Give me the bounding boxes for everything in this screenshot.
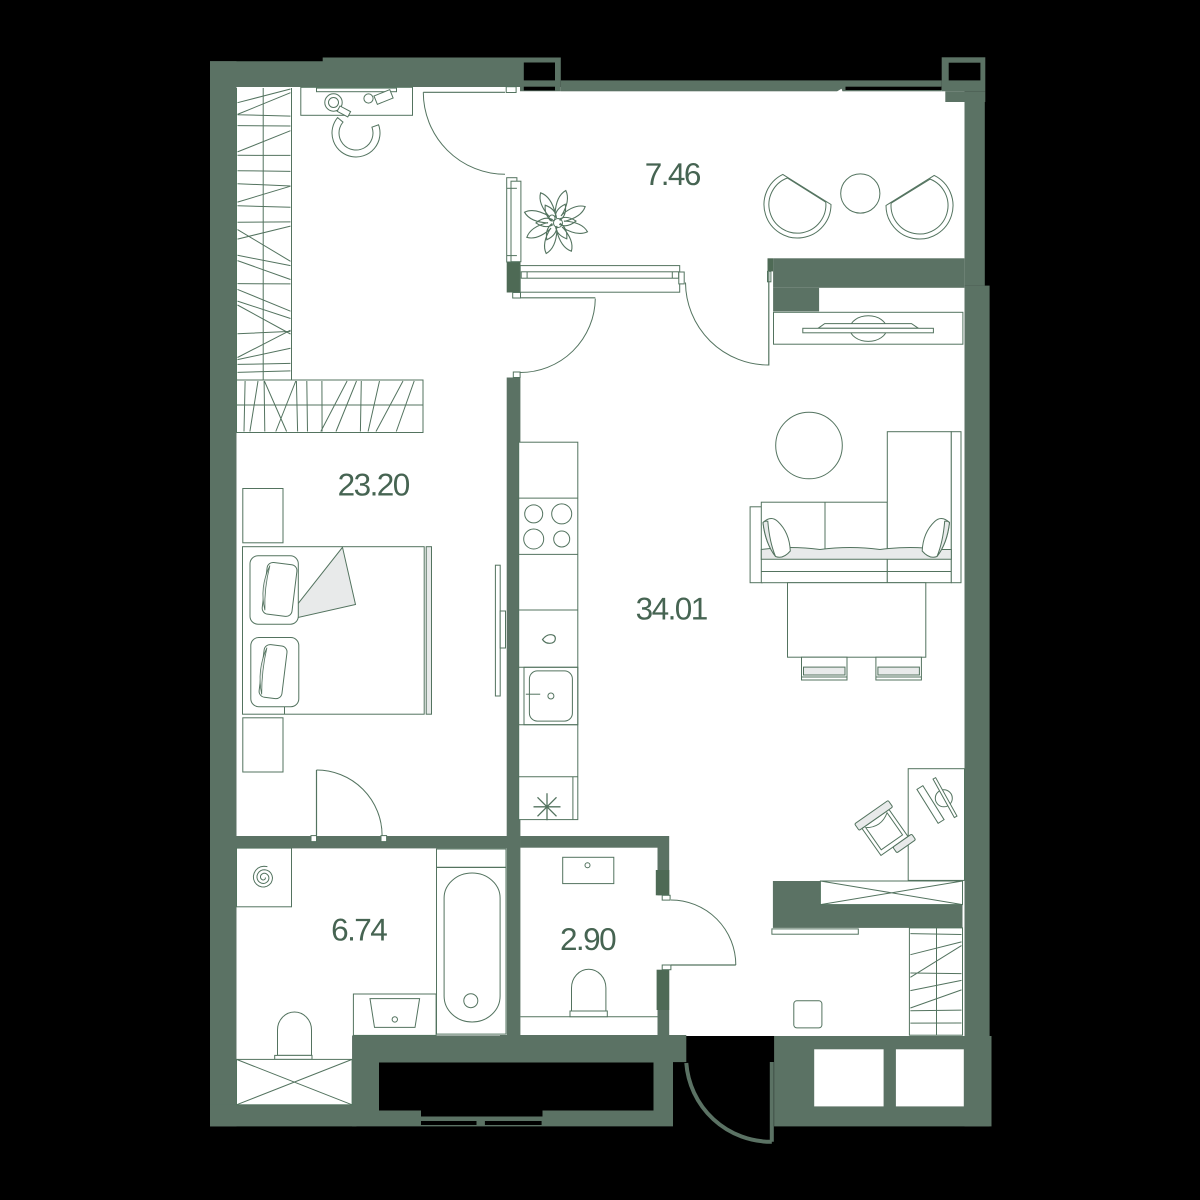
svg-text:6.74: 6.74 — [331, 912, 387, 948]
svg-text:2.90: 2.90 — [560, 921, 616, 957]
svg-text:23.20: 23.20 — [338, 467, 410, 503]
svg-text:34.01: 34.01 — [636, 591, 707, 627]
svg-text:7.46: 7.46 — [645, 156, 701, 192]
